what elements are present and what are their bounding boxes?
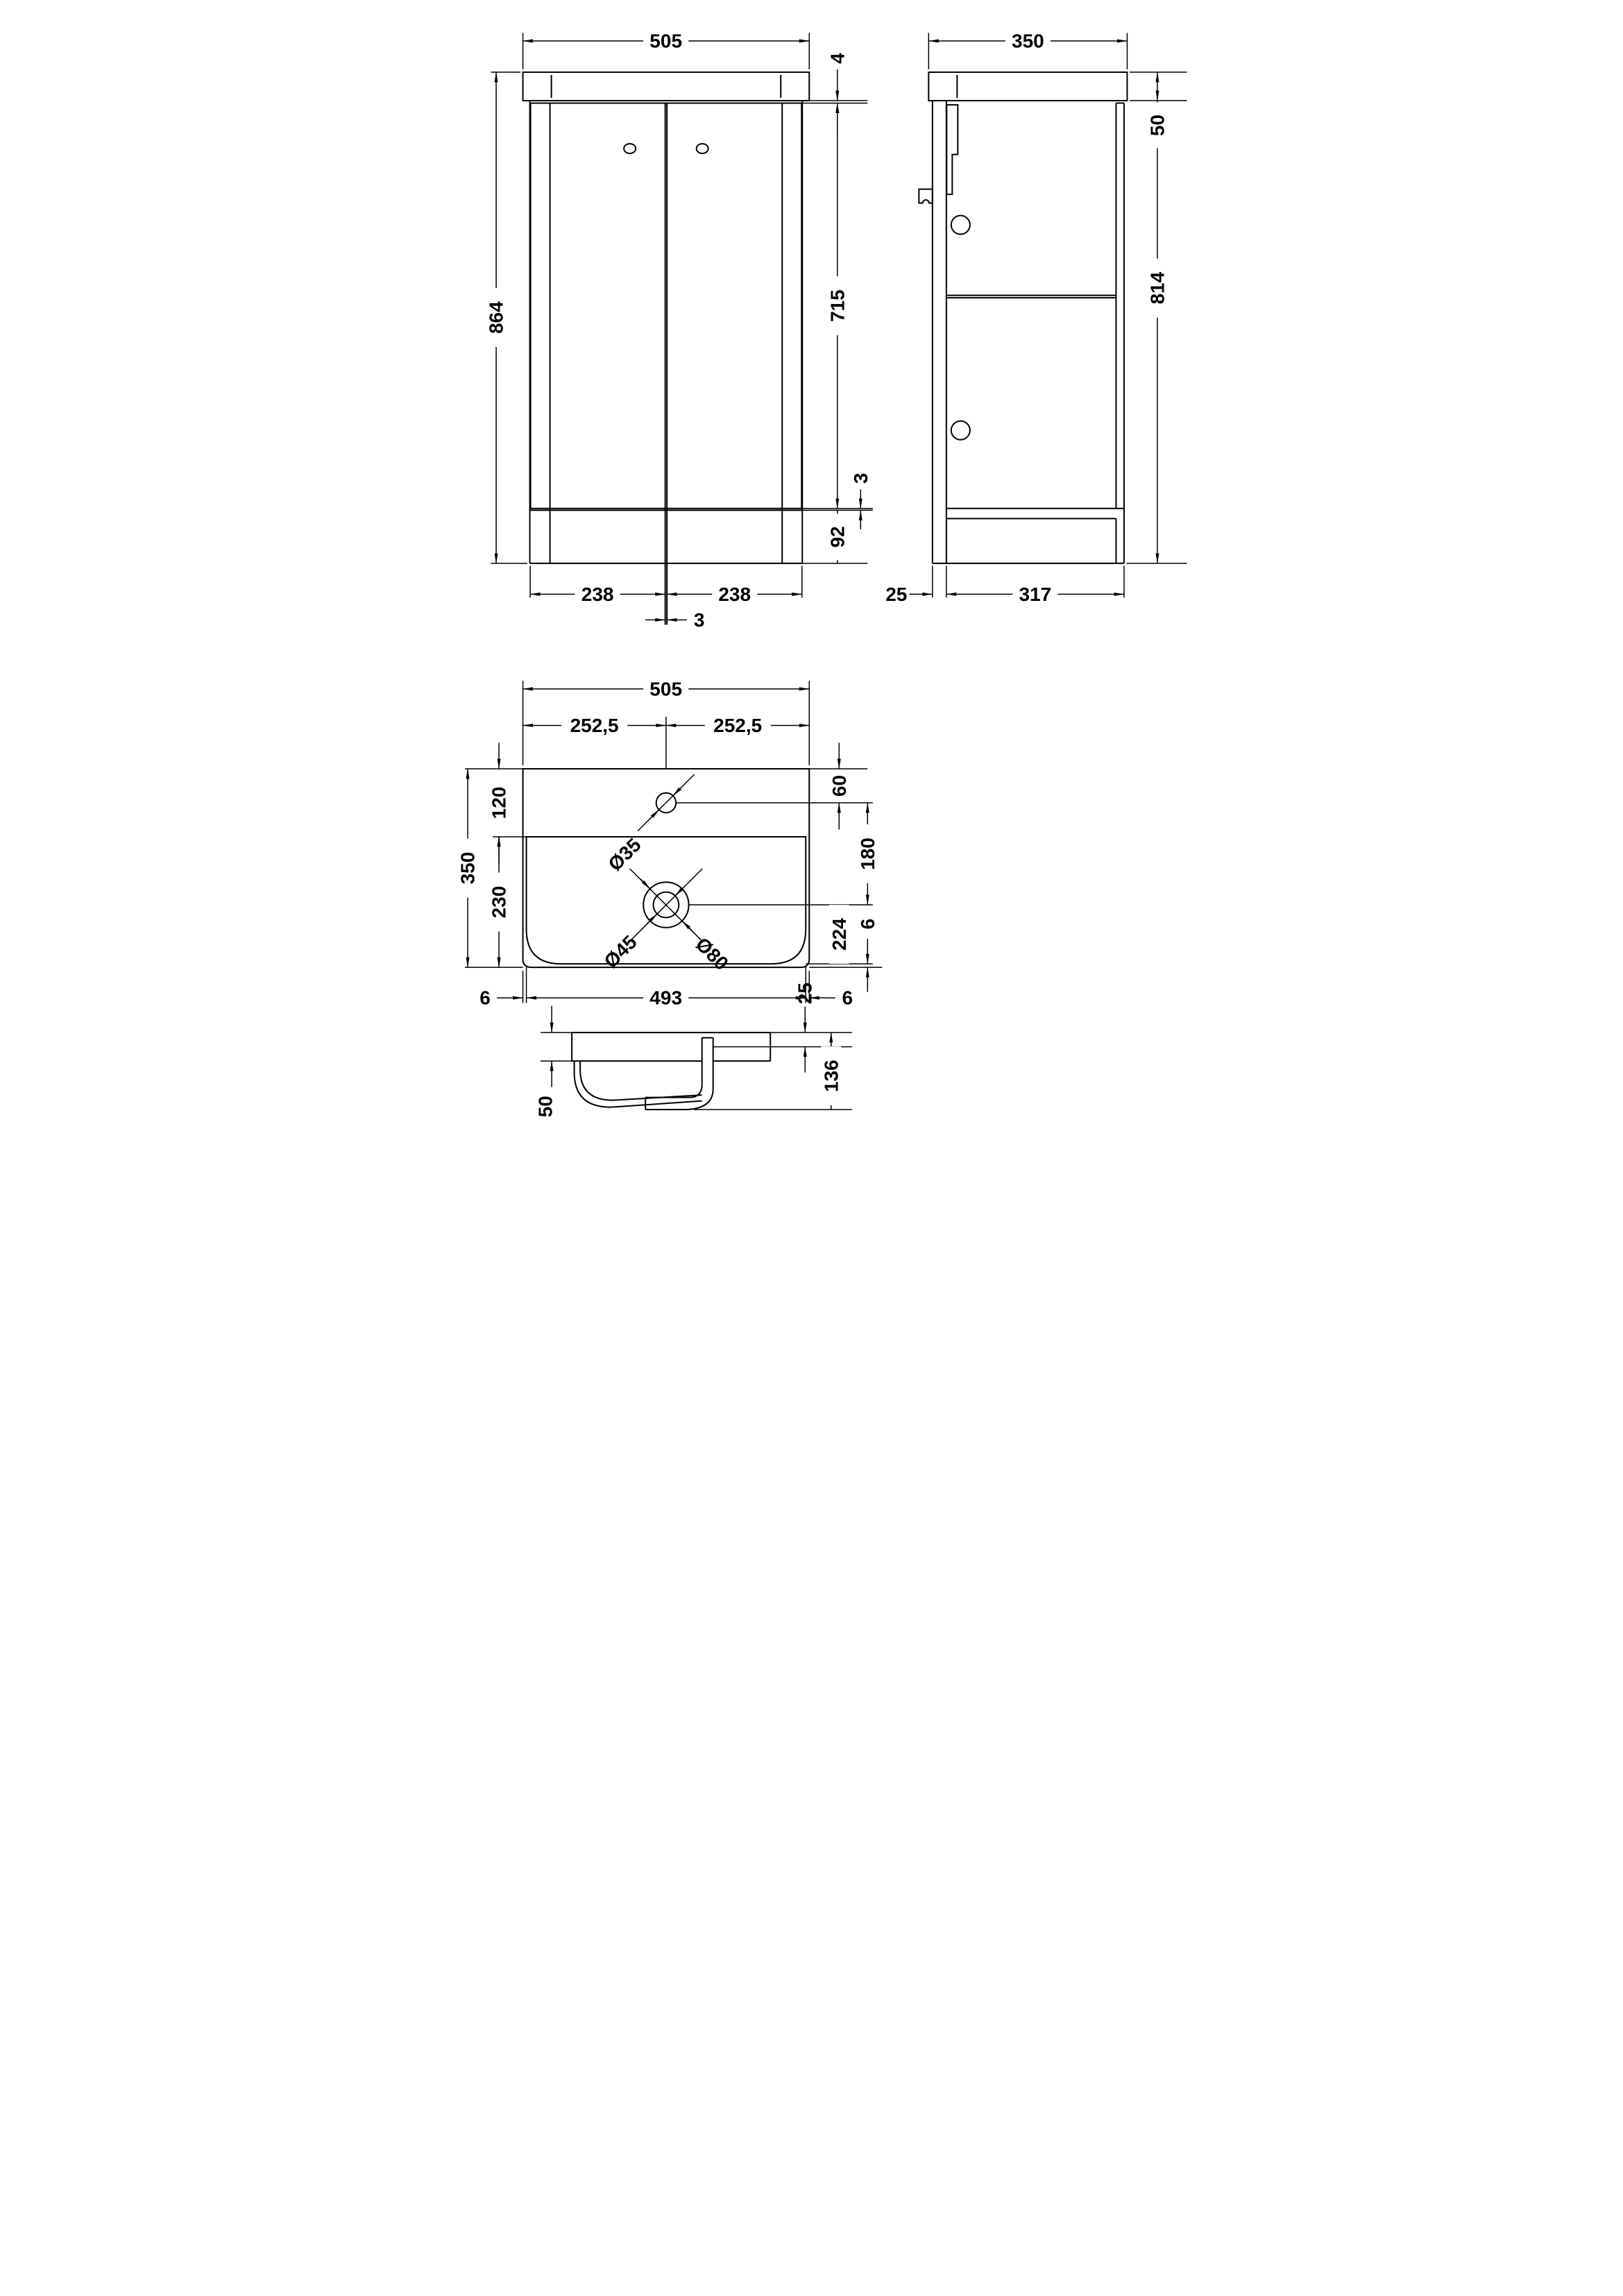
dim-side-base-depth: 317 — [1019, 584, 1051, 605]
side-cam-fitting-bottom — [951, 421, 969, 440]
dim-plan-tap-to-waste: 180 — [856, 837, 878, 870]
label-tap-hole-dia: Ø35 — [604, 834, 645, 875]
dim-front-top-gap: 4 — [826, 53, 848, 64]
plan-basin-outline — [526, 837, 806, 964]
dim-front-door-height: 715 — [826, 289, 848, 322]
dim-section-total-depth: 136 — [820, 1060, 842, 1092]
front-right-handle-hole — [696, 144, 708, 153]
dim-front-plinth-height: 92 — [826, 526, 848, 547]
dim-plan-tap-offset: 60 — [828, 775, 849, 797]
drawing-sheet: 505 864 4 715 3 92 238 238 — [406, 0, 1218, 1148]
dim-plan-waste-band: 224 — [828, 918, 849, 951]
section-bowl-inner — [580, 1061, 702, 1100]
dim-front-door-width-right: 238 — [718, 584, 751, 605]
side-wall-hook — [919, 189, 933, 203]
dim-side-cabinet-height: 814 — [1146, 271, 1168, 304]
dim-front-width: 505 — [649, 31, 682, 52]
dim-side-depth: 350 — [1012, 31, 1044, 52]
technical-drawing: 505 864 4 715 3 92 238 238 — [406, 0, 1218, 1148]
side-wall-bracket — [946, 105, 958, 194]
dim-section-outlet-offset: 25 — [794, 983, 815, 1004]
plan-worktop-outline — [522, 769, 809, 967]
side-worktop — [928, 72, 1127, 101]
dim-plan-edge-right: 6 — [842, 987, 853, 1009]
dim-side-worktop-thickness: 50 — [1146, 114, 1168, 136]
dim-plan-half-left: 252,5 — [570, 715, 618, 736]
front-view — [522, 72, 809, 624]
dim-plan-inner-width: 493 — [649, 987, 682, 1009]
front-left-handle-hole — [624, 144, 636, 153]
dim-plan-depth: 350 — [457, 852, 478, 885]
plan-view: Ø35 Ø45 Ø80 — [522, 717, 872, 974]
dim-front-door-bottom-gap: 3 — [849, 473, 871, 484]
dim-section-basin-thickness: 50 — [534, 1096, 556, 1117]
dim-front-center-gap: 3 — [693, 609, 704, 631]
dim-plan-edge-left: 6 — [479, 987, 491, 1009]
side-view — [919, 72, 1127, 563]
dim-plan-half-right: 252,5 — [713, 715, 762, 736]
plan-view-dimensions: 505 252,5 252,5 120 230 350 60 180 224 — [457, 678, 882, 1008]
dim-plan-bowl-band: 230 — [488, 886, 509, 919]
front-view-dimensions: 505 864 4 715 3 92 238 238 — [485, 31, 872, 631]
front-worktop — [522, 72, 809, 101]
dim-plan-width: 505 — [649, 678, 682, 699]
dim-side-back-inset: 25 — [885, 584, 907, 605]
dim-plan-back-band: 120 — [488, 787, 509, 819]
side-cam-fitting-top — [951, 216, 969, 235]
section-view — [572, 1032, 770, 1109]
dim-plan-rim-thickness: 6 — [856, 919, 878, 930]
section-trap-inner — [645, 1089, 713, 1109]
section-bowl-outer — [574, 1061, 702, 1107]
label-waste-dia-outer: Ø80 — [691, 933, 732, 974]
dim-front-height: 864 — [485, 301, 507, 334]
dim-front-door-width-left: 238 — [581, 584, 613, 605]
label-waste-dia-inner: Ø45 — [600, 931, 640, 972]
